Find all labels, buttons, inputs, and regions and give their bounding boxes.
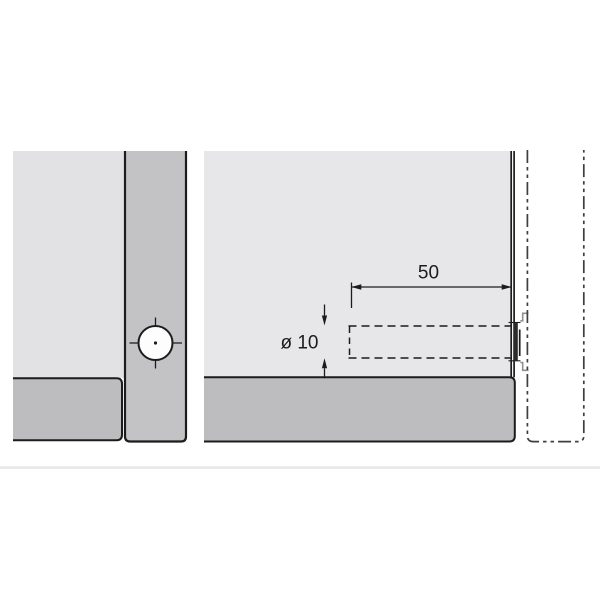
right-bottom-panel <box>204 377 515 441</box>
right-panel-face <box>204 151 511 378</box>
technical-drawing-page: 50 ø 10 <box>0 0 600 600</box>
technical-drawing-canvas: 50 ø 10 <box>0 0 600 600</box>
connector-head-plate <box>514 323 518 361</box>
left-panel-face <box>13 151 124 378</box>
page-divider-line <box>0 466 600 469</box>
phantom-panel-centerline-outline <box>527 150 583 442</box>
drill-hole-center-dot <box>154 341 157 344</box>
diameter-dimension-label: ø 10 <box>280 333 318 354</box>
left-bottom-panel <box>13 378 122 440</box>
depth-dimension-label: 50 <box>418 263 439 284</box>
side-panel-edge-strip <box>125 151 186 442</box>
